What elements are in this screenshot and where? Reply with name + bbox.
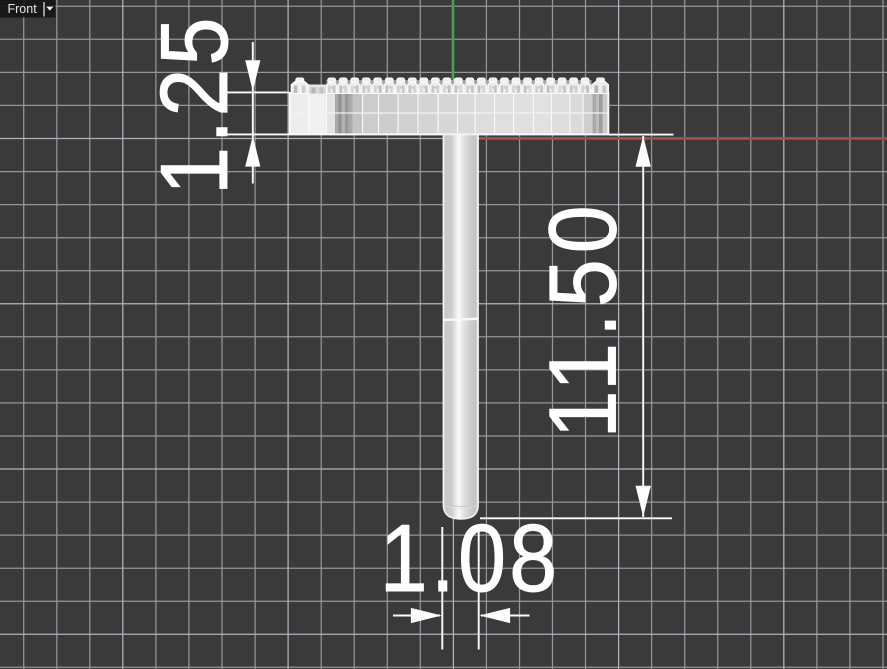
svg-text:1.25: 1.25 xyxy=(141,14,248,195)
svg-text:1.08: 1.08 xyxy=(380,505,561,612)
svg-text:Front: Front xyxy=(8,2,38,16)
svg-text:11.50: 11.50 xyxy=(529,199,636,438)
